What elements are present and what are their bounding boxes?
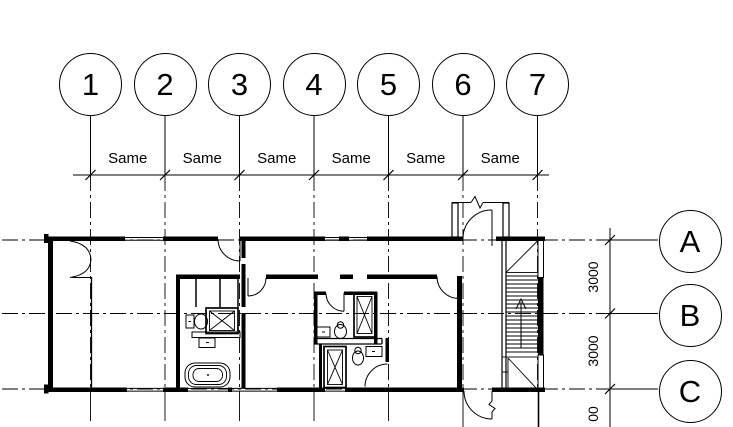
grid-bubble-2-label: 2 [156, 69, 173, 100]
door-bath-left [218, 239, 240, 261]
top-dimension-line[interactable] [73, 170, 549, 180]
grid-bubble-A[interactable]: A [659, 210, 722, 273]
column-grid-lines [91, 116, 538, 427]
double-door-left [70, 241, 92, 278]
door-bedroom-right [437, 277, 459, 299]
closets-left-bath [178, 278, 238, 308]
grid-bubble-1[interactable]: 1 [59, 53, 122, 116]
grid-bubble-6-label: 6 [454, 69, 471, 100]
door-bath-upper-middle [326, 293, 344, 311]
entry-vestibule [452, 197, 509, 238]
toilet-upper-middle-bath [335, 322, 347, 339]
grid-bubble-7[interactable]: 7 [506, 53, 569, 116]
door-bath-lower-middle [365, 364, 388, 387]
dimension-text-same-3[interactable]: Same [257, 151, 296, 166]
dimension-text-3000-1[interactable]: 3000 [586, 261, 600, 292]
dimension-text-same-6[interactable]: Same [481, 151, 520, 166]
shower-left-bath [206, 308, 238, 334]
stair-direction-arrow-icon [516, 299, 526, 348]
grid-bubble-C-label: C [679, 376, 701, 407]
grid-bubble-B-label: B [680, 300, 701, 331]
door-entry [463, 210, 492, 246]
grid-bubble-1-label: 1 [82, 69, 99, 100]
sink-upper-middle-bath [317, 327, 330, 337]
bathtub [185, 363, 230, 387]
dimension-text-3000-2[interactable]: 3000 [586, 335, 600, 366]
toilet-left-bath [186, 314, 208, 329]
grid-bubble-3[interactable]: 3 [208, 53, 271, 116]
grid-bubble-7-label: 7 [529, 69, 546, 100]
dimension-text-same-1[interactable]: Same [108, 151, 147, 166]
grid-bubble-2[interactable]: 2 [134, 53, 197, 116]
row-grid-lines [2, 240, 658, 389]
break-line-icon [471, 197, 483, 209]
grid-bubble-B[interactable]: B [659, 284, 722, 347]
floor-plan-canvas[interactable]: 1 2 3 4 5 6 7 Same Same Same Same Same S… [0, 0, 733, 427]
grid-bubble-C[interactable]: C [659, 360, 722, 423]
dimension-text-same-2[interactable]: Same [183, 151, 222, 166]
grid-bubble-6[interactable]: 6 [432, 53, 495, 116]
shower-upper-middle-bath [354, 293, 375, 337]
grid-bubble-5[interactable]: 5 [357, 53, 420, 116]
right-dimension-line[interactable] [605, 228, 615, 427]
grid-bubble-4[interactable]: 4 [283, 53, 346, 116]
shower-lower-middle-bath [324, 347, 346, 388]
dimension-text-same-4[interactable]: Same [332, 151, 371, 166]
grid-bubble-4-label: 4 [305, 69, 322, 100]
dimension-text-same-5[interactable]: Same [406, 151, 445, 166]
grid-bubble-3-label: 3 [231, 69, 248, 100]
sink-lower-middle-bath [366, 347, 382, 357]
dimension-text-3000-3-partial[interactable]: 00 [586, 406, 600, 422]
door-bedroom-middle [248, 278, 266, 296]
grid-bubble-5-label: 5 [380, 69, 397, 100]
grid-bubble-A-label: A [680, 226, 701, 257]
door-rear-exit [464, 391, 495, 419]
staircase [502, 240, 538, 390]
toilet-lower-middle-bath [353, 347, 364, 365]
